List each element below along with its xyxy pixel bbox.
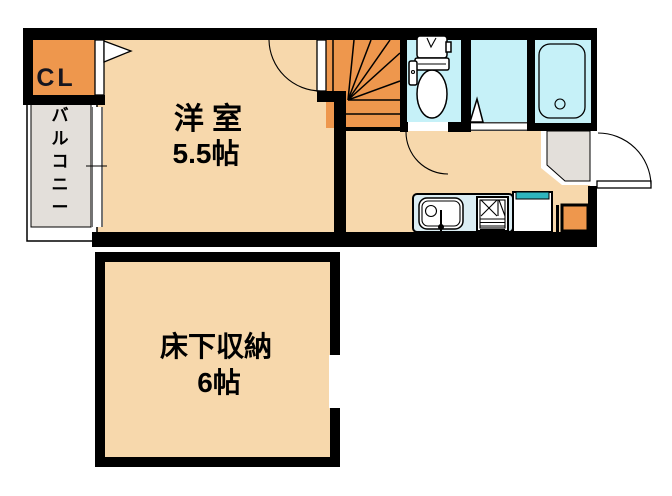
washroom-sliding-door: [471, 122, 527, 131]
wall-segment: [23, 28, 33, 105]
western-room-label: 洋 室: [174, 102, 242, 136]
wall-segment: [346, 127, 407, 131]
wall-segment: [400, 38, 407, 132]
wall-segment: [591, 28, 597, 131]
wall-segment: [92, 232, 597, 247]
toilet-tank: [417, 36, 447, 58]
wall-segment: [23, 28, 597, 40]
shoe-cabinet: [562, 205, 588, 231]
bathtub: [539, 44, 585, 118]
floor-plan-canvas: CL バルコニー 洋 室 5.5帖 床下収納 6帖: [0, 0, 672, 496]
closet-door-track: [95, 40, 104, 95]
wall-segment: [527, 123, 591, 131]
wall-segment: [23, 95, 105, 105]
bathtub-outline: [539, 44, 585, 118]
sink-faucet-base: [438, 224, 444, 230]
front-door-leaf: [597, 181, 651, 188]
washing-machine-space: [513, 192, 552, 232]
washing-machine-top: [516, 192, 549, 199]
toilet-handle: [446, 42, 451, 52]
kitchen-counter: [413, 194, 513, 233]
western-room-size: 5.5帖: [173, 138, 240, 169]
wall-segment: [400, 122, 408, 132]
wall-segment: [527, 38, 535, 131]
wall-segment: [461, 38, 471, 132]
floor-plan-svg: CL バルコニー 洋 室 5.5帖 床下収納 6帖: [0, 0, 672, 496]
storage-size: 6帖: [197, 367, 241, 398]
entrance-step-edge: [556, 205, 559, 232]
wall-segment: [448, 122, 471, 132]
balcony-label: バルコニー: [52, 106, 69, 217]
wall-segment: [334, 91, 346, 232]
wall-segment: [317, 91, 339, 102]
western-room-floor: [95, 40, 334, 232]
storage-label: 床下収納: [160, 330, 272, 362]
storage-door-opening: [329, 355, 341, 408]
closet-label: CL: [36, 64, 75, 92]
balcony-window-gap: [91, 107, 103, 227]
room-door-leaf: [317, 40, 326, 91]
toilet-bowl: [417, 70, 447, 118]
